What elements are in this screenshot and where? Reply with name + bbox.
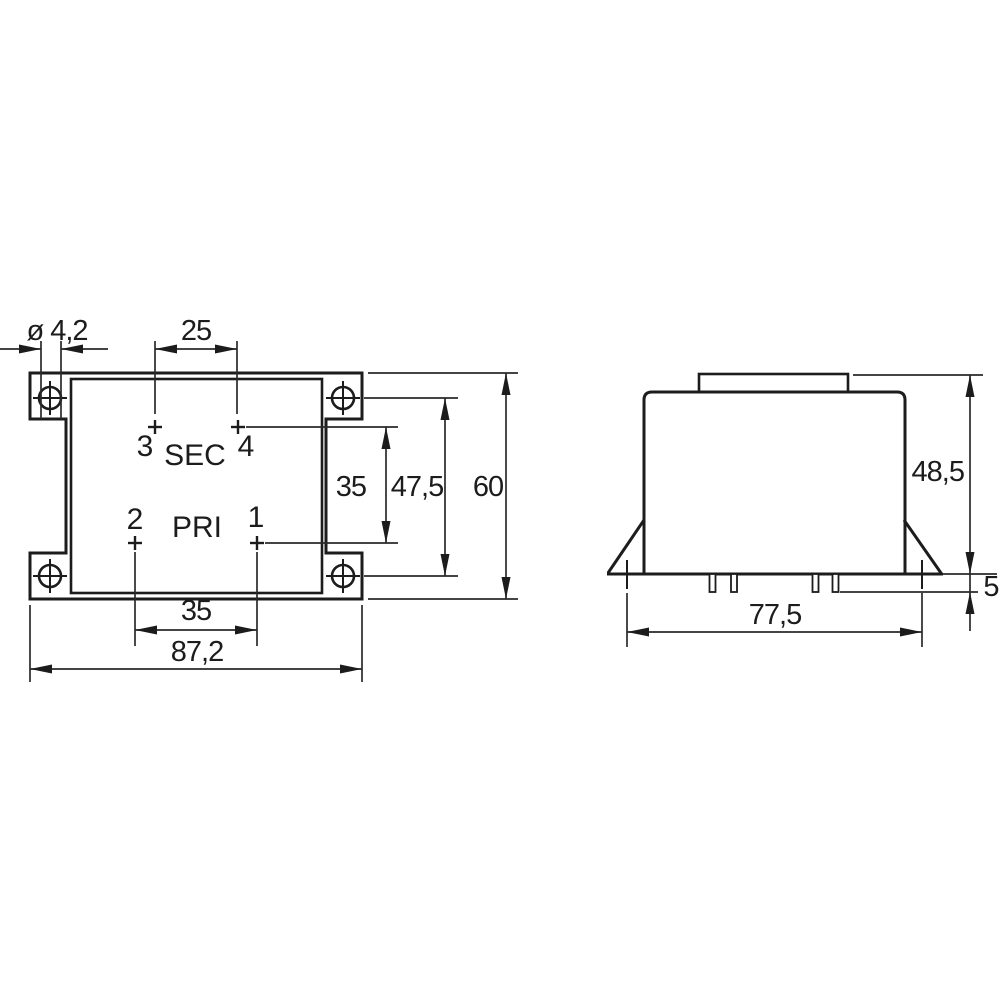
dim-label: 25 bbox=[181, 315, 211, 347]
dim-label: 60 bbox=[473, 471, 503, 503]
solder-pin bbox=[833, 574, 839, 592]
arrowhead bbox=[235, 626, 257, 635]
arrowhead bbox=[155, 345, 177, 354]
mounting-hole-bottom-right bbox=[326, 559, 360, 593]
pin-2-label: 2 bbox=[127, 503, 144, 536]
mounting-hole-top-left bbox=[33, 381, 67, 415]
arrowhead bbox=[502, 577, 511, 599]
dim-label: 77,5 bbox=[749, 599, 801, 631]
arrowhead bbox=[215, 345, 237, 354]
top-cap-outline bbox=[699, 374, 848, 392]
arrowhead bbox=[30, 665, 52, 674]
dim-hole-diameter: ø 4,2 bbox=[0, 315, 108, 419]
pin-2-mark bbox=[128, 536, 142, 550]
pri-winding-label: PRI bbox=[172, 511, 222, 544]
arrowhead bbox=[966, 592, 975, 614]
arrowhead bbox=[441, 398, 450, 420]
pin-4-label: 4 bbox=[238, 430, 255, 463]
case-outline bbox=[644, 392, 905, 574]
dim-hole-pitch-vertical: 47,5 bbox=[364, 398, 458, 576]
top-view: 3 SEC 4 2 PRI 1 ø 4,2 25 bbox=[0, 315, 518, 682]
dim-label: 87,2 bbox=[171, 636, 223, 668]
dim-label: 5 bbox=[983, 571, 998, 603]
front-view: 48,5 5 77,5 bbox=[607, 374, 999, 647]
solder-pin bbox=[813, 574, 819, 592]
pin-3-label: 3 bbox=[137, 430, 154, 463]
arrowhead bbox=[441, 554, 450, 576]
arrowhead bbox=[966, 375, 975, 397]
arrowhead bbox=[966, 552, 975, 574]
mounting-hole-bottom-left bbox=[33, 559, 67, 593]
arrowhead bbox=[340, 665, 362, 674]
arrowhead bbox=[135, 626, 157, 635]
dim-label: 48,5 bbox=[912, 456, 964, 488]
drawing-canvas: 3 SEC 4 2 PRI 1 ø 4,2 25 bbox=[0, 0, 1000, 1000]
dim-label: 35 bbox=[336, 471, 366, 503]
dim-label: 47,5 bbox=[391, 471, 443, 503]
dim-label: 35 bbox=[181, 595, 211, 627]
pin-1-mark bbox=[250, 536, 264, 550]
dim-sec-pin-pitch: 25 bbox=[155, 315, 237, 414]
arrowhead bbox=[627, 628, 649, 637]
arrowhead bbox=[900, 628, 922, 637]
arrowhead bbox=[382, 521, 391, 543]
body-outline bbox=[71, 379, 322, 593]
solder-pin bbox=[710, 574, 716, 592]
arrowhead bbox=[502, 373, 511, 395]
solder-pin bbox=[731, 574, 737, 592]
transformer-dimension-drawing: 3 SEC 4 2 PRI 1 ø 4,2 25 bbox=[0, 0, 1000, 1000]
arrowhead bbox=[382, 427, 391, 449]
sec-winding-label: SEC bbox=[164, 439, 226, 472]
pin-1-label: 1 bbox=[248, 501, 265, 534]
flange-outline bbox=[30, 373, 362, 599]
mounting-hole-top-right bbox=[326, 381, 360, 415]
dim-label: ø 4,2 bbox=[26, 315, 87, 347]
dim-mounting-hole-pitch: 77,5 bbox=[627, 593, 922, 647]
